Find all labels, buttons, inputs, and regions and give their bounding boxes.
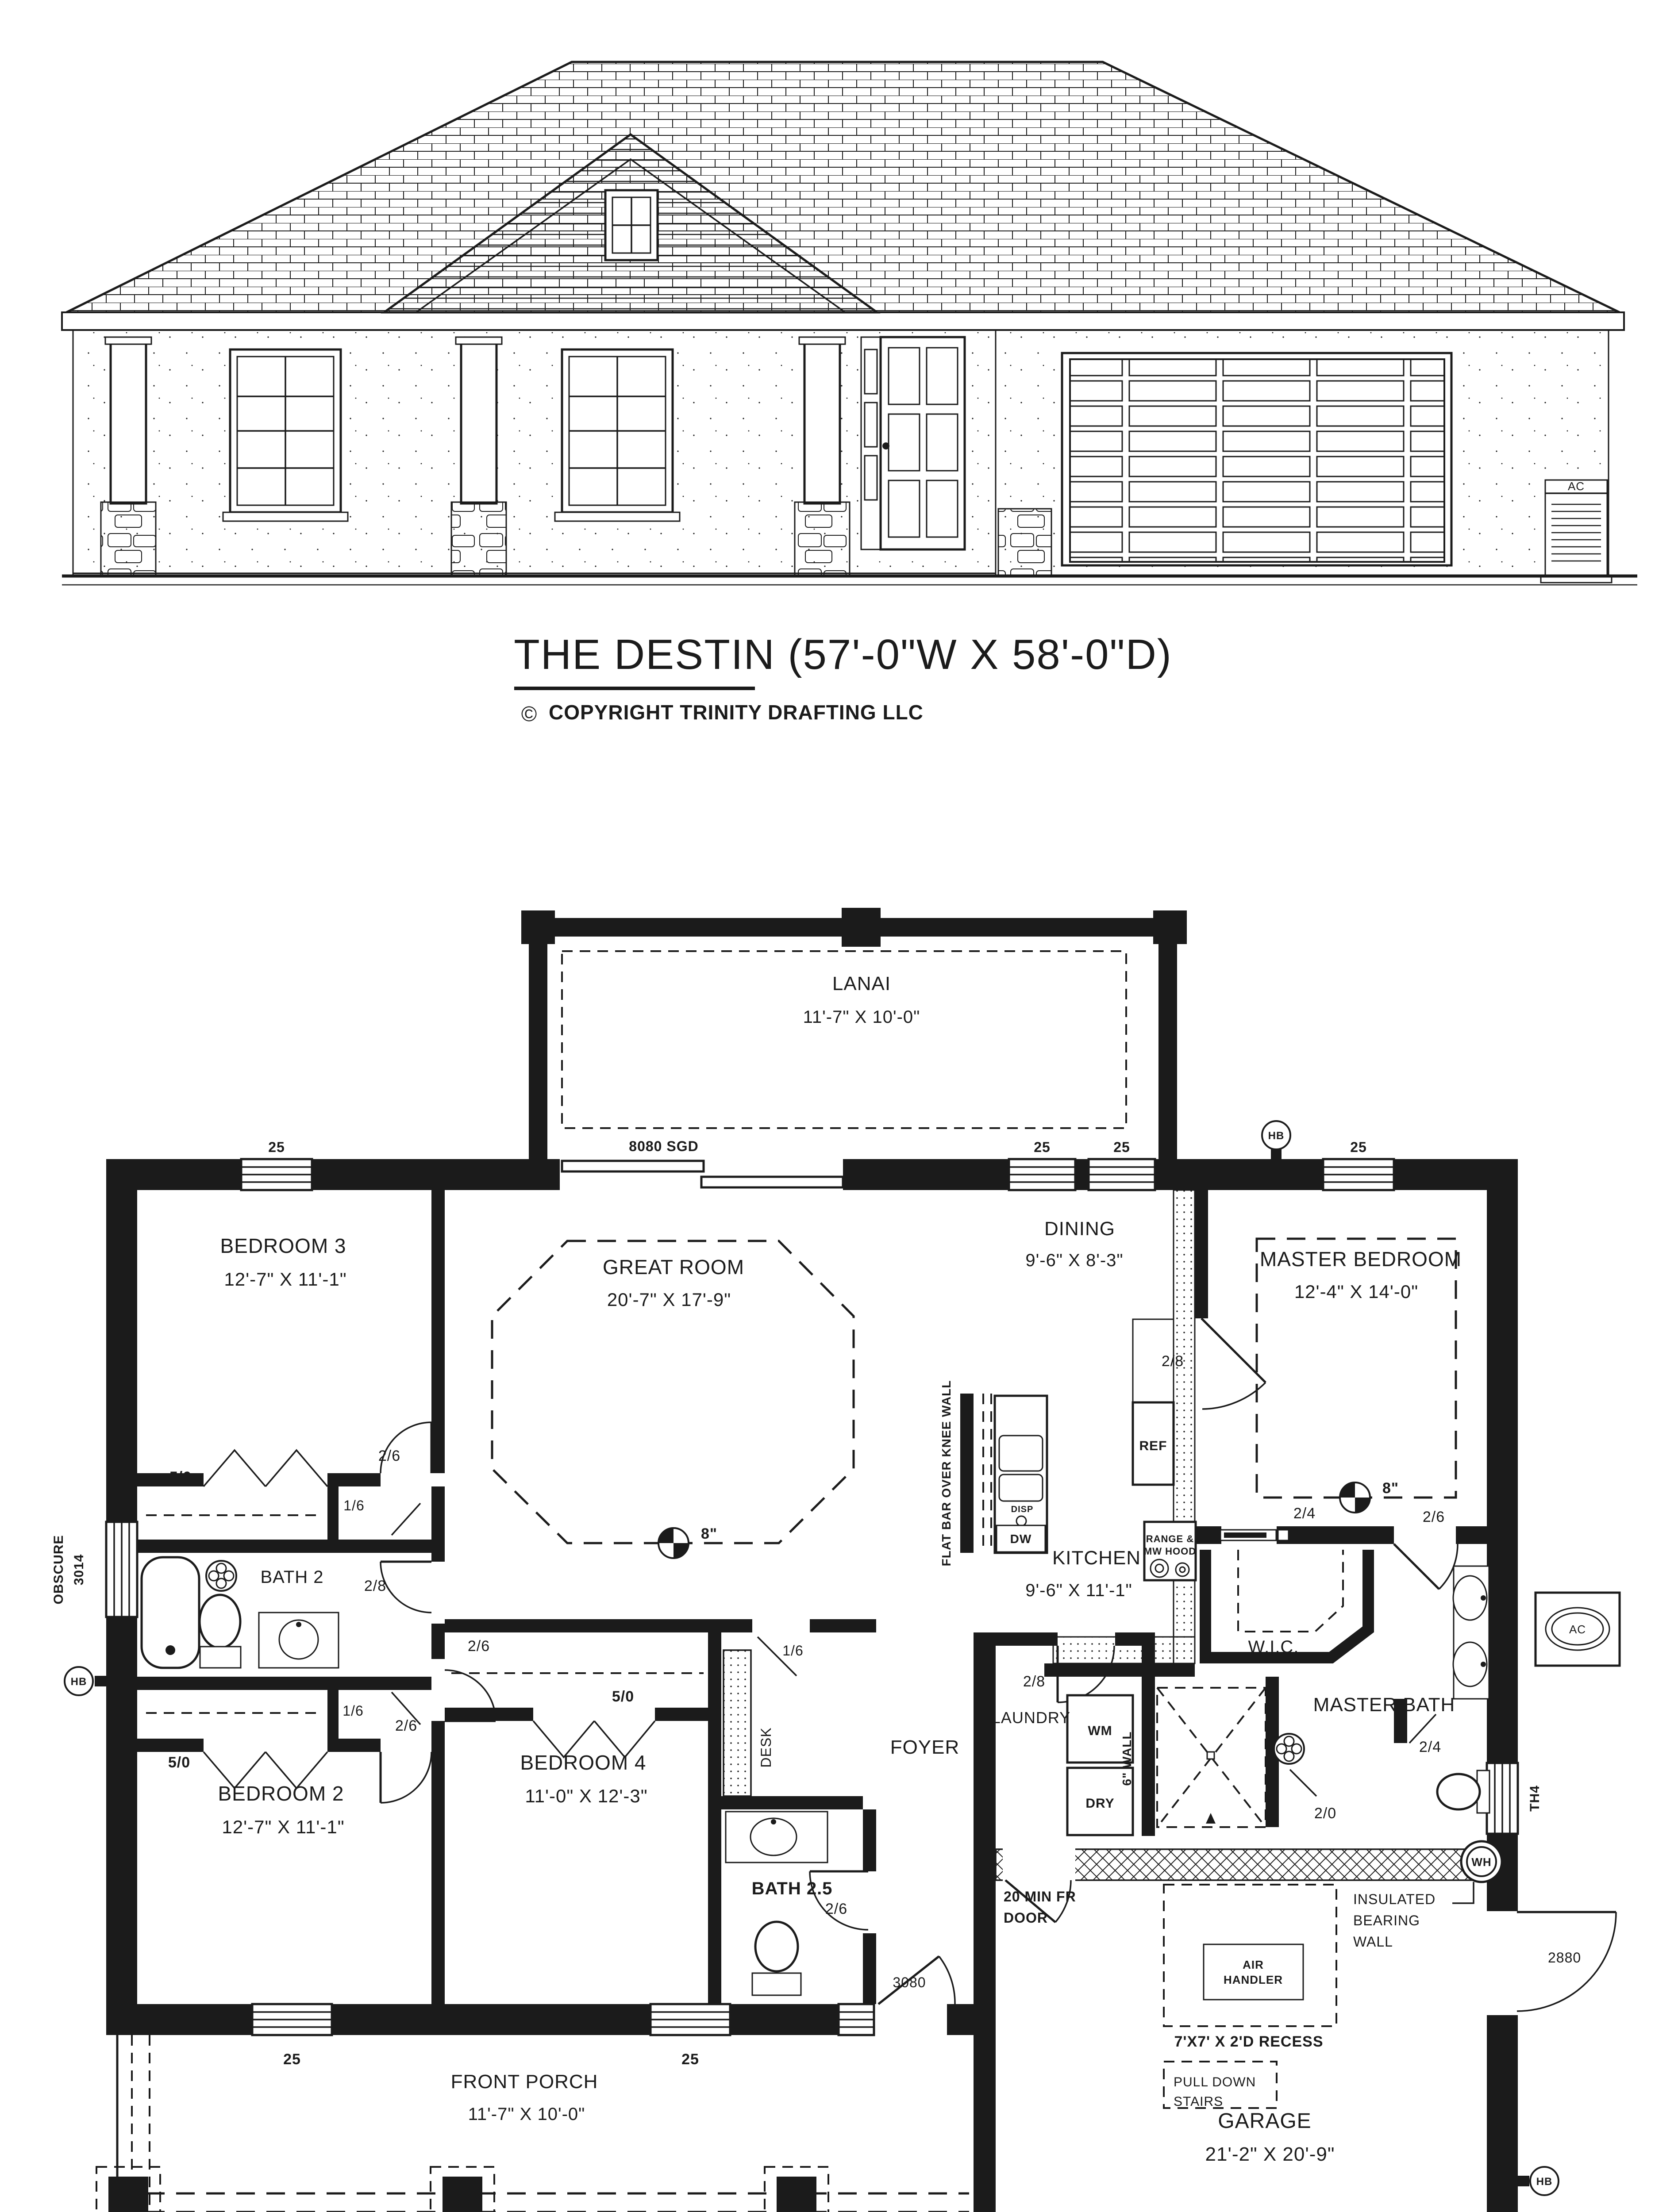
- room-label-great-room: GREAT ROOM: [603, 1256, 744, 1279]
- window-th4: [1487, 1763, 1518, 1834]
- room-dims-bedroom3: 12'-7" X 11'-1": [224, 1269, 346, 1290]
- room-label-dining: DINING: [1044, 1218, 1115, 1240]
- door-label-16: 1/6: [782, 1643, 803, 1659]
- room-label-kitchen: KITCHEN: [1052, 1547, 1141, 1569]
- column-label-8in: 8": [701, 1525, 717, 1542]
- room-dims-bedroom4: 11'-0" X 12'-3": [525, 1786, 647, 1806]
- plan-name-top: THE DESTIN: [514, 631, 775, 678]
- sliding-glass-door: [562, 1161, 843, 1187]
- desk-counter: [724, 1650, 751, 1796]
- door-label-24: 2/4: [1419, 1739, 1441, 1755]
- lanai: [521, 908, 1187, 1159]
- door-label-sgd: 8080 SGD: [629, 1138, 698, 1154]
- fascia: [62, 312, 1624, 330]
- fixture-label-disp: DISP: [1011, 1505, 1034, 1514]
- note-insulated-3: WALL: [1353, 1934, 1393, 1950]
- air-handler-label-1: AIR: [1243, 1958, 1264, 1971]
- floor-plan: AC LANAI 11'-7" X 10'-0" 8080 SGD 25 25 …: [51, 908, 1620, 2212]
- column-label-8in: 8": [1382, 1480, 1399, 1497]
- window-dining-a: [1009, 1159, 1075, 1190]
- column-marker-icon: [1340, 1482, 1370, 1513]
- room-dims-front-porch: 11'-7" X 10'-0": [468, 2104, 585, 2124]
- window-label-50: 5/0: [612, 1688, 634, 1705]
- room-label-master-bath: MASTER BATH: [1313, 1694, 1455, 1716]
- copyright-symbol-top: ©: [521, 703, 537, 726]
- title-block-top: THE DESTIN (57'-0"W X 58'-0"D) © COPYRIG…: [514, 631, 1172, 726]
- door-label-26: 2/6: [378, 1448, 400, 1464]
- room-dims-lanai: 11'-7" X 10'-0": [803, 1007, 920, 1027]
- room-label-bedroom4: BEDROOM 4: [520, 1751, 646, 1774]
- note-pulldown-1: PULL DOWN: [1174, 2075, 1256, 2089]
- bath25-fixtures: [726, 1812, 827, 1995]
- note-fire-door-1: 20 MIN FR: [1004, 1889, 1076, 1905]
- entry-door-elevation: [861, 337, 965, 549]
- door-label-16: 1/6: [343, 1703, 363, 1719]
- window-label-25: 25: [283, 2051, 301, 2068]
- kitchen-counter-south: [1053, 1637, 1195, 1663]
- kitchen-counter-strip: [1174, 1190, 1195, 1663]
- window-master: [1323, 1159, 1394, 1190]
- ac-unit-label: AC: [1568, 480, 1585, 493]
- door-label-26: 2/6: [395, 1717, 417, 1734]
- fixture-label-dw: DW: [1010, 1532, 1032, 1546]
- air-handler-label-2: HANDLER: [1224, 1973, 1283, 1986]
- room-label-bath2: BATH 2: [260, 1567, 323, 1587]
- plan-canvas: HB WH: [0, 0, 1678, 2212]
- ac-unit-elevation: AC: [1541, 480, 1612, 583]
- garage-items: [1164, 1841, 1502, 2108]
- window-bedroom3: [241, 1159, 312, 1190]
- door-label-3080: 3080: [893, 1974, 926, 1990]
- door-label-26: 2/6: [825, 1901, 847, 1917]
- door-label-26: 2/6: [468, 1638, 490, 1655]
- door-label-16: 1/6: [343, 1498, 364, 1513]
- air-handler: [1204, 1944, 1303, 2000]
- window-label-25: 25: [1350, 1139, 1367, 1155]
- door-label-26: 2/6: [1423, 1509, 1445, 1525]
- toilet-icon: [752, 1922, 801, 1995]
- hip-roof: [66, 62, 1620, 312]
- room-label-master-bedroom: MASTER BEDROOM: [1260, 1248, 1462, 1271]
- fixture-label-dry: DRY: [1085, 1796, 1114, 1811]
- window-obscure: [106, 1522, 137, 1617]
- note-insulated-1: INSULATED: [1353, 1891, 1436, 1907]
- fixture-label-ref: REF: [1139, 1439, 1167, 1453]
- toilet-icon: [200, 1595, 241, 1668]
- window-label-25: 25: [268, 1139, 285, 1155]
- window-label-th4: TH4: [1528, 1785, 1542, 1812]
- window-label-50: 5/0: [168, 1754, 190, 1771]
- window-foyer-sidelite: [839, 2004, 874, 2035]
- window-front-b: [650, 2004, 730, 2035]
- room-dims-bedroom2: 12'-7" X 11'-1": [222, 1816, 344, 1837]
- water-heater-icon: [1461, 1841, 1502, 1882]
- room-label-bedroom2: BEDROOM 2: [218, 1782, 344, 1805]
- great-room-tray-ceiling: [492, 1241, 854, 1543]
- pocket-door-wic: [1220, 1530, 1289, 1540]
- window-label-25: 25: [1034, 1139, 1051, 1155]
- room-dims-dining: 9'-6" X 8'-3": [1025, 1251, 1123, 1270]
- note-six-wall: 6" WALL: [1120, 1732, 1134, 1786]
- fixture-label-wm: WM: [1088, 1724, 1112, 1738]
- window-dining-b: [1089, 1159, 1155, 1190]
- room-dims-kitchen: 9'-6" X 11'-1": [1025, 1581, 1132, 1600]
- room-label-laundry: LAUNDRY: [992, 1709, 1070, 1727]
- door-label-28: 2/8: [1162, 1353, 1184, 1370]
- plan-size-top: (57'-0"W X 58'-0"D): [775, 631, 1172, 678]
- door-label-24: 2/4: [1293, 1505, 1316, 1522]
- elevation-window-right: [555, 349, 680, 521]
- ac-pad: AC: [1536, 1593, 1620, 1666]
- room-label-lanai: LANAI: [832, 973, 891, 995]
- insulated-bearing-wall: [996, 1847, 1489, 1882]
- copyright-text-top: COPYRIGHT TRINITY DRAFTING LLC: [549, 701, 924, 724]
- window-front-a: [252, 2004, 332, 2035]
- room-label-bath25: BATH 2.5: [752, 1879, 833, 1898]
- desk-label: DESK: [758, 1727, 774, 1767]
- window-label-25: 25: [681, 2051, 699, 2068]
- elevation-window-left: [223, 349, 348, 521]
- fan-icon: [206, 1561, 236, 1591]
- note-pulldown-2: STAIRS: [1174, 2094, 1223, 2109]
- door-label-28: 2/8: [364, 1578, 386, 1594]
- room-dims-great-room: 20'-7" X 17'-9": [607, 1289, 731, 1310]
- room-dims-garage: 21'-2" X 20'-9": [1205, 2143, 1335, 2165]
- room-label-garage: GARAGE: [1218, 2109, 1311, 2133]
- room-label-front-porch: FRONT PORCH: [451, 2071, 598, 2093]
- door-label-20: 2/0: [1314, 1805, 1336, 1822]
- ac-pad-label: AC: [1569, 1623, 1586, 1636]
- window-label-obscure: OBSCURE: [51, 1535, 66, 1604]
- room-label-wic: W.I.C.: [1248, 1637, 1299, 1657]
- door-label-28: 2/8: [1023, 1673, 1045, 1690]
- window-label-50: 5/0: [169, 1469, 192, 1486]
- master-tray-ceiling: [1257, 1239, 1456, 1498]
- window-label-25: 25: [1113, 1139, 1130, 1155]
- fixture-label-range2: MW HOOD: [1144, 1546, 1196, 1557]
- drawing-sheet: HB WH: [0, 0, 1678, 2212]
- note-fire-door-2: DOOR: [1004, 1910, 1048, 1926]
- note-insulated-2: BEARING: [1353, 1912, 1420, 1928]
- gable-window-icon: [605, 190, 658, 260]
- fixture-label-range1: RANGE &: [1146, 1533, 1194, 1544]
- fan-icon: [1274, 1734, 1304, 1764]
- room-label-bedroom3: BEDROOM 3: [220, 1234, 346, 1257]
- toilet-icon: [1437, 1770, 1489, 1813]
- note-flat-bar: FLAT BAR OVER KNEE WALL: [939, 1380, 953, 1567]
- door-label-2880: 2880: [1548, 1950, 1581, 1966]
- column-marker-icon: [658, 1528, 689, 1558]
- plan-title-top: THE DESTIN (57'-0"W X 58'-0"D): [514, 631, 1172, 678]
- note-recess: 7'X7' X 2'D RECESS: [1174, 2033, 1323, 2050]
- elevation-left-wall: [73, 330, 996, 576]
- room-dims-master-bedroom: 12'-4" X 14'-0": [1294, 1281, 1418, 1302]
- window-label-obscure-size: 3014: [72, 1554, 86, 1586]
- garage-door-elevation: [1062, 353, 1451, 565]
- vanity-sink-icon: [259, 1613, 339, 1668]
- front-elevation: AC: [62, 62, 1637, 585]
- room-label-foyer: FOYER: [890, 1736, 960, 1758]
